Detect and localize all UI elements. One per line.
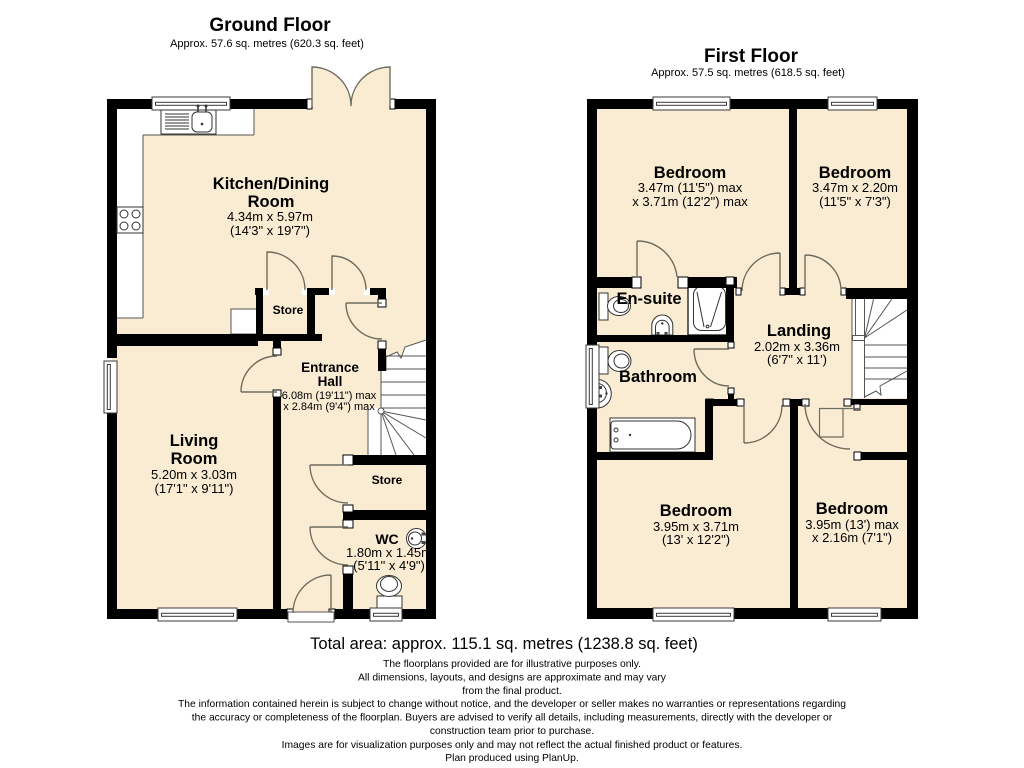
svg-text:Living: Living [170,432,219,450]
svg-text:Bathroom: Bathroom [619,368,697,386]
svg-text:x 2.84m (9'4") max: x 2.84m (9'4") max [283,401,375,413]
svg-text:Room: Room [171,450,218,468]
svg-text:(11'5" x 7'3"): (11'5" x 7'3") [819,194,891,209]
svg-text:Images are for visualization p: Images are for visualization purposes on… [282,740,743,751]
svg-text:3.47m (11'5") max: 3.47m (11'5") max [638,180,743,195]
svg-text:En-suite: En-suite [616,290,681,308]
svg-text:Store: Store [372,473,403,487]
svg-text:the accuracy or completeness o: the accuracy or completeness of the floo… [192,713,833,724]
svg-text:from the final product.: from the final product. [462,686,562,697]
svg-text:3.47m x 2.20m: 3.47m x 2.20m [812,180,898,195]
svg-text:Total area: approx. 115.1 sq.: Total area: approx. 115.1 sq. metres (12… [310,635,698,653]
svg-text:Approx. 57.6 sq. metres (620.3: Approx. 57.6 sq. metres (620.3 sq. feet) [170,38,364,50]
svg-text:Bedroom: Bedroom [660,502,732,520]
svg-text:Plan produced using PlanUp.: Plan produced using PlanUp. [445,753,578,764]
svg-text:Landing: Landing [767,322,831,340]
svg-text:Entrance: Entrance [301,360,359,375]
svg-text:(13' x 12'2"): (13' x 12'2") [662,532,730,547]
svg-text:Kitchen/Dining: Kitchen/Dining [213,175,329,193]
svg-text:The information contained here: The information contained herein is subj… [178,699,846,710]
svg-text:The floorplans provided are fo: The floorplans provided are for illustra… [383,659,641,670]
svg-text:5.20m x 3.03m: 5.20m x 3.03m [151,467,237,482]
svg-text:Store: Store [273,303,304,317]
svg-text:Hall: Hall [318,374,343,389]
svg-text:(5'11" x 4'9"): (5'11" x 4'9") [353,558,425,573]
svg-text:First Floor: First Floor [704,46,799,67]
svg-text:x 3.71m (12'2") max: x 3.71m (12'2") max [632,194,748,209]
svg-text:Bedroom: Bedroom [816,500,888,518]
svg-text:Ground Floor: Ground Floor [209,15,331,36]
svg-text:Approx. 57.5 sq. metres (618.5: Approx. 57.5 sq. metres (618.5 sq. feet) [651,67,845,79]
svg-text:4.34m x 5.97m: 4.34m x 5.97m [227,209,313,224]
svg-text:All dimensions, layouts, and d: All dimensions, layouts, and designs are… [358,672,667,683]
svg-text:(6'7" x 11'): (6'7" x 11') [767,352,827,367]
svg-text:(14'3" x 19'7"): (14'3" x 19'7") [230,223,310,238]
svg-text:x 2.16m (7'1"): x 2.16m (7'1") [812,530,892,545]
svg-text:(17'1" x 9'11"): (17'1" x 9'11") [155,481,234,496]
svg-text:construction team prior to pur: construction team prior to purchase. [430,726,594,737]
